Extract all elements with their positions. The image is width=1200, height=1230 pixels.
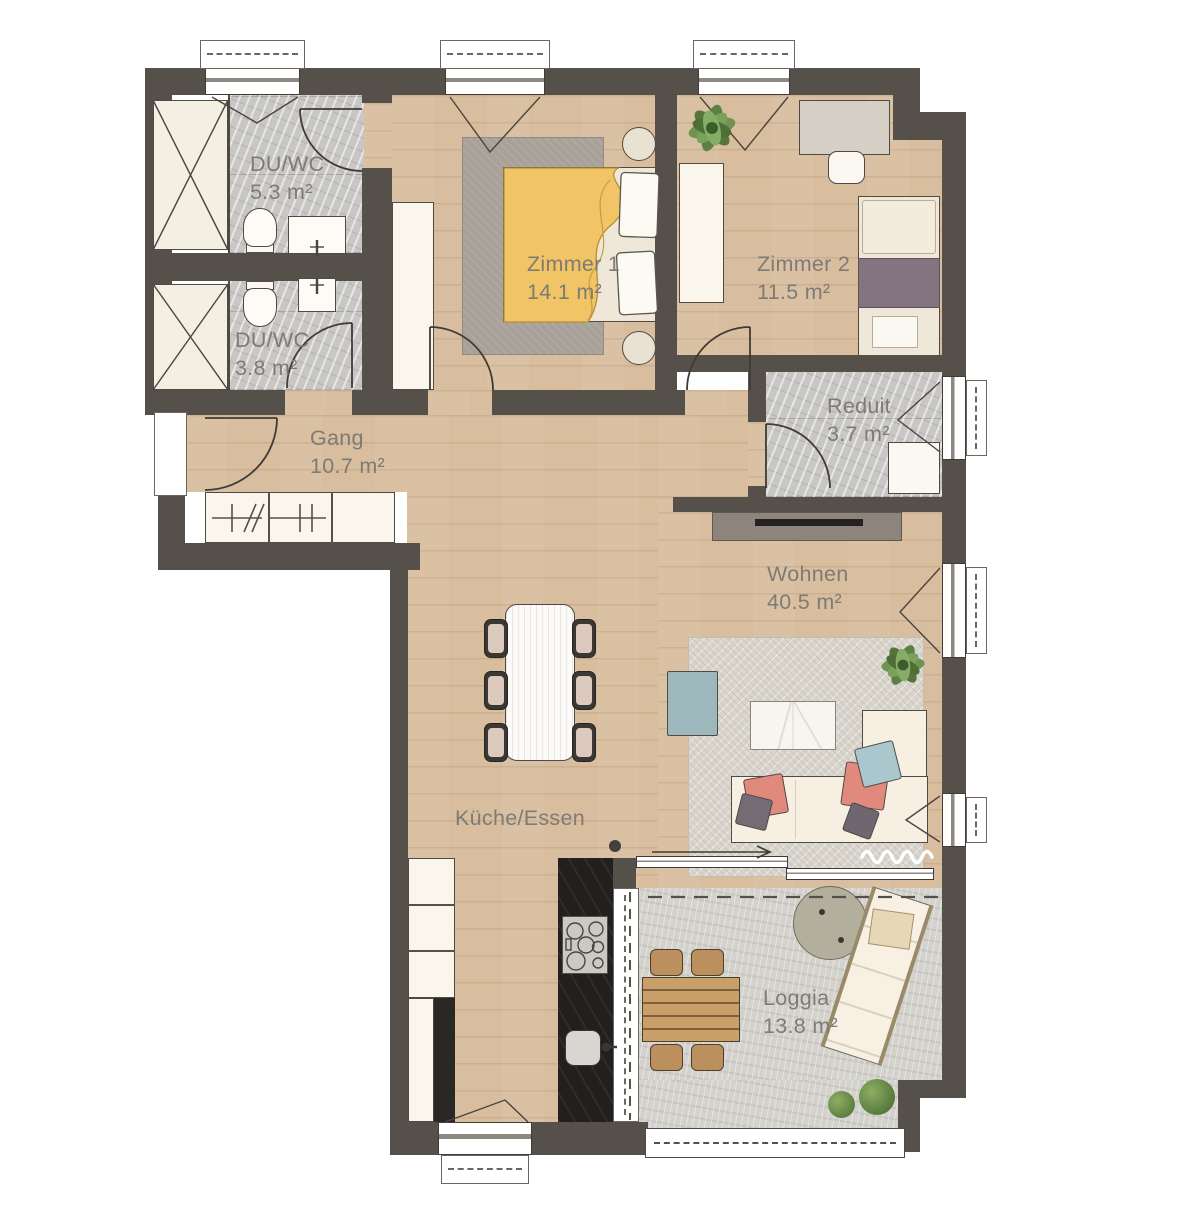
- cabinet-divider: [408, 950, 455, 952]
- cabinet-divider: [408, 904, 455, 906]
- room-area: 5.3 m²: [250, 178, 324, 206]
- kitchen-cabinets: [408, 858, 455, 998]
- toilet: [243, 208, 277, 247]
- desk: [799, 100, 890, 155]
- window-reduit: [942, 376, 966, 460]
- wardrobe-divider: [331, 492, 333, 543]
- wardrobe-zimmer-1: [392, 202, 434, 390]
- wall: [748, 372, 766, 422]
- sink-top: [288, 216, 346, 254]
- armchair: [667, 671, 718, 736]
- window-sill: [693, 40, 795, 69]
- sliding-door-panel: [636, 856, 788, 868]
- floor-door-patch-z1: [428, 390, 492, 415]
- window-zimmer-2: [698, 68, 790, 95]
- sofa-seam: [795, 780, 796, 839]
- sideboard: [712, 512, 902, 541]
- room-area: 11.5 m²: [757, 278, 850, 306]
- wall: [613, 858, 636, 890]
- room-name: DU/WC: [250, 150, 324, 178]
- room-label-loggia: Loggia 13.8 m²: [763, 984, 838, 1040]
- room-area: 3.7 m²: [827, 420, 891, 448]
- exterior-notch: [920, 60, 966, 112]
- room-name: Gang: [310, 424, 385, 452]
- dining-chair: [572, 619, 596, 658]
- room-label-duwc-top: DU/WC 5.3 m²: [250, 150, 324, 206]
- loggia-glass-side: [613, 888, 639, 1122]
- wall: [362, 168, 392, 390]
- dining-chair: [484, 671, 508, 710]
- wall: [390, 543, 408, 1155]
- kitchen-counter: [558, 858, 613, 1122]
- floor-plan-apartment: DU/WC 5.3 m² DU/WC 3.8 m² Zimmer 1 14.1 …: [0, 0, 1200, 1230]
- wall: [893, 112, 966, 140]
- room-label-kueche-essen: Küche/Essen: [455, 804, 585, 832]
- room-label-reduit: Reduit 3.7 m²: [827, 392, 891, 448]
- window-kueche: [438, 1122, 532, 1155]
- coffee-table: [750, 701, 836, 750]
- room-label-zimmer-1: Zimmer 1 14.1 m²: [527, 250, 620, 306]
- wall: [673, 497, 966, 512]
- desk-chair: [828, 151, 865, 184]
- nightstand-top: [622, 127, 656, 161]
- wardrobe-gang: [205, 492, 395, 543]
- window-sill: [440, 40, 550, 69]
- wall: [352, 390, 428, 415]
- bed-single-duvet: [872, 316, 918, 348]
- room-name: Loggia: [763, 984, 838, 1012]
- window-wohnen-1: [942, 563, 966, 658]
- room-name: DU/WC: [235, 326, 309, 354]
- kitchen-cabinets-lower: [408, 998, 434, 1122]
- loggia-chair: [650, 1044, 683, 1071]
- window-wohnen-2: [942, 793, 966, 847]
- dining-chair: [572, 723, 596, 762]
- lounger-pillow: [868, 908, 915, 949]
- sliding-door-panel: [786, 868, 934, 880]
- room-name: Reduit: [827, 392, 891, 420]
- dining-chair: [484, 723, 508, 762]
- cooktop: [562, 916, 608, 974]
- wall: [677, 355, 966, 372]
- shower-top: [153, 100, 228, 250]
- wall: [390, 1122, 438, 1155]
- floor-door-patch-reduit: [748, 422, 766, 486]
- loggia-chair: [691, 1044, 724, 1071]
- dining-chair: [484, 619, 508, 658]
- wall: [492, 390, 685, 415]
- loggia-chair: [691, 949, 724, 976]
- bush: [828, 1091, 855, 1118]
- loggia-chair: [650, 949, 683, 976]
- room-area: 13.8 m²: [763, 1012, 838, 1040]
- kitchen-sink: [565, 1030, 601, 1066]
- room-name: Zimmer 1: [527, 250, 620, 278]
- sink-bottom: [298, 278, 336, 312]
- floor-corridor-patch: [658, 497, 673, 512]
- window-zimmer-1: [445, 68, 545, 95]
- shower-bottom: [153, 284, 228, 390]
- room-name: Zimmer 2: [757, 250, 850, 278]
- room-name: Wohnen: [767, 560, 849, 588]
- room-label-wohnen: Wohnen 40.5 m²: [767, 560, 849, 616]
- wall: [362, 95, 392, 103]
- dining-chair: [572, 671, 596, 710]
- wall: [532, 1122, 648, 1155]
- loggia-railing: [645, 1128, 905, 1158]
- room-area: 3.8 m²: [235, 354, 309, 382]
- wall: [655, 95, 677, 390]
- floor-door-patch-ensuite: [362, 103, 392, 168]
- wall: [158, 543, 420, 570]
- bed-single-blanket: [858, 258, 940, 308]
- kitchen-tall-unit: [434, 998, 455, 1122]
- washer: [888, 442, 940, 494]
- loggia-table: [642, 977, 740, 1042]
- floor-door-patch-bad: [285, 390, 352, 415]
- toilet: [243, 288, 277, 327]
- wall: [145, 253, 368, 281]
- window-duwc: [205, 68, 300, 95]
- room-area: 14.1 m²: [527, 278, 620, 306]
- bush: [859, 1079, 895, 1115]
- floor-corridor-stub: [658, 415, 748, 497]
- wall: [893, 95, 920, 112]
- wardrobe-divider: [268, 492, 270, 543]
- nightstand-bottom: [622, 331, 656, 365]
- wall: [898, 1080, 966, 1098]
- entrance-threshold: [154, 412, 187, 496]
- window-sill: [200, 40, 305, 69]
- window-sill: [441, 1155, 529, 1184]
- window-sill: [966, 380, 987, 456]
- bed-single-pillow: [862, 200, 936, 254]
- dining-table: [505, 604, 575, 761]
- room-label-zimmer-2: Zimmer 2 11.5 m²: [757, 250, 850, 306]
- wardrobe-zimmer-2: [679, 163, 724, 303]
- floor-door-patch-z2: [685, 390, 750, 415]
- window-sill: [966, 567, 987, 654]
- room-area: 40.5 m²: [767, 588, 849, 616]
- room-name: Küche/Essen: [455, 804, 585, 832]
- room-label-gang: Gang 10.7 m²: [310, 424, 385, 480]
- room-area: 10.7 m²: [310, 452, 385, 480]
- tv: [755, 519, 863, 526]
- window-sill: [966, 797, 987, 843]
- room-label-duwc-bottom: DU/WC 3.8 m²: [235, 326, 309, 382]
